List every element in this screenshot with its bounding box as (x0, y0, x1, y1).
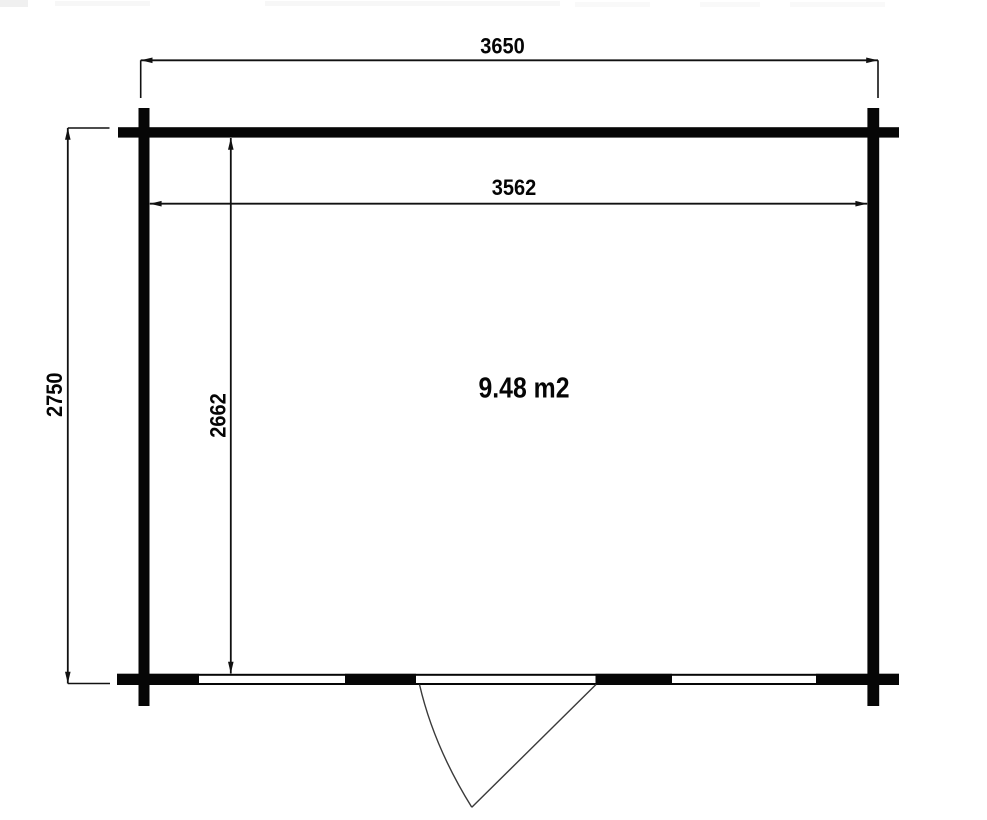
svg-text:9.48 m2: 9.48 m2 (479, 372, 570, 404)
svg-text:2750: 2750 (42, 373, 67, 418)
svg-text:2662: 2662 (206, 393, 231, 438)
svg-text:3562: 3562 (492, 175, 537, 200)
svg-text:3650: 3650 (480, 33, 525, 58)
